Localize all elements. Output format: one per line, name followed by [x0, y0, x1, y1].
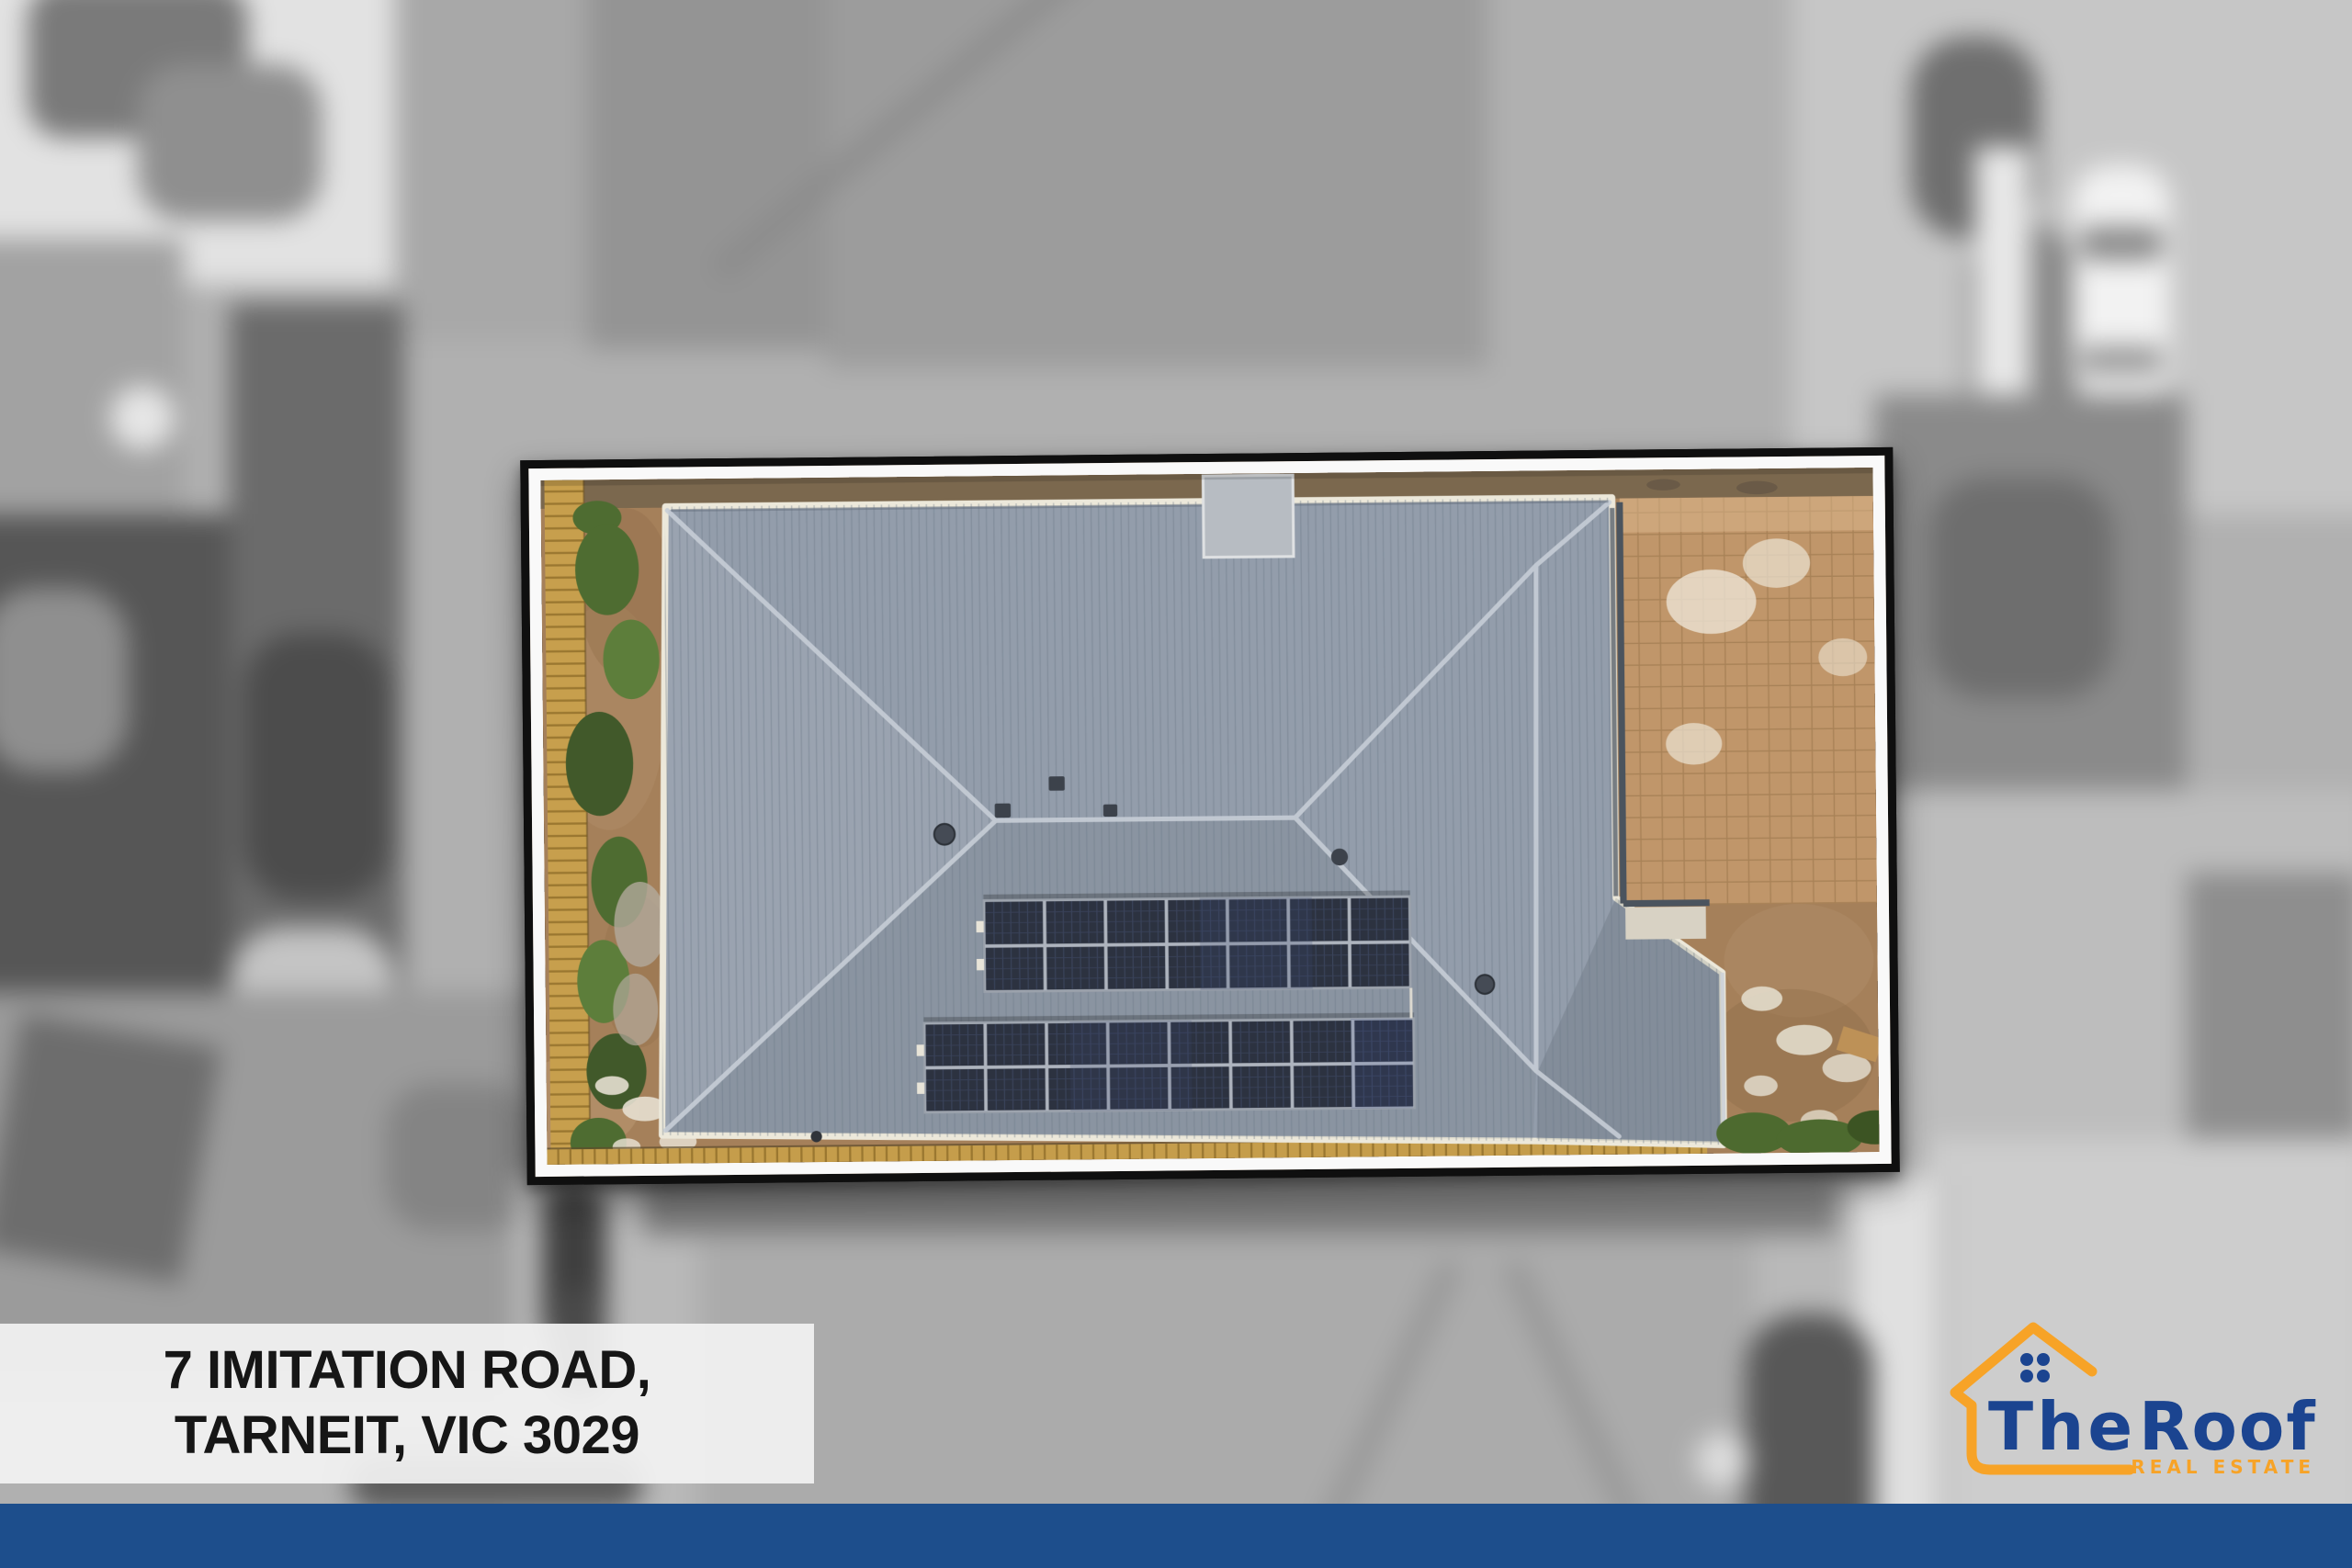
- background-region: [1929, 478, 2113, 698]
- car-windshield: [2080, 226, 2163, 261]
- brand-tagline: REAL ESTATE: [2131, 1456, 2315, 1478]
- aerial-photo: [540, 468, 1879, 1165]
- background-region: [386, 1084, 533, 1231]
- property-photo-frame: [520, 447, 1900, 1185]
- footer-bar: [0, 1504, 2352, 1568]
- solar-array-lower: [916, 1012, 1415, 1112]
- background-region: [1695, 1433, 1750, 1488]
- brand-word-roof: Roof: [2139, 1388, 2317, 1465]
- background-region: [698, 1240, 1755, 1543]
- background-region: [0, 588, 129, 772]
- background-region: [1975, 147, 2030, 413]
- brand-logo: The Roof REAL ESTATE: [1929, 1290, 2334, 1499]
- solar-array-upper: [976, 890, 1410, 992]
- brand-word-the: The: [1988, 1388, 2136, 1465]
- photo-mat: [528, 456, 1891, 1177]
- background-region: [138, 64, 322, 220]
- background-region: [110, 386, 175, 450]
- address-line-1: 7 IMITATION ROAD,: [164, 1338, 651, 1404]
- paved-courtyard: [1620, 496, 1878, 940]
- background-region: [243, 634, 390, 900]
- garden-shed: [1203, 475, 1294, 558]
- car-rear-glass: [2080, 345, 2163, 375]
- address-line-2: TARNEIT, VIC 3029: [175, 1404, 639, 1469]
- address-plate: 7 IMITATION ROAD, TARNEIT, VIC 3029: [0, 1324, 814, 1483]
- background-region: [827, 0, 1488, 367]
- window-dots-icon: [2020, 1353, 2050, 1382]
- background-region: [643, 1180, 1837, 1235]
- wing-gutter: [1723, 973, 1724, 1145]
- poster-canvas: 7 IMITATION ROAD, TARNEIT, VIC 3029 The …: [0, 0, 2352, 1568]
